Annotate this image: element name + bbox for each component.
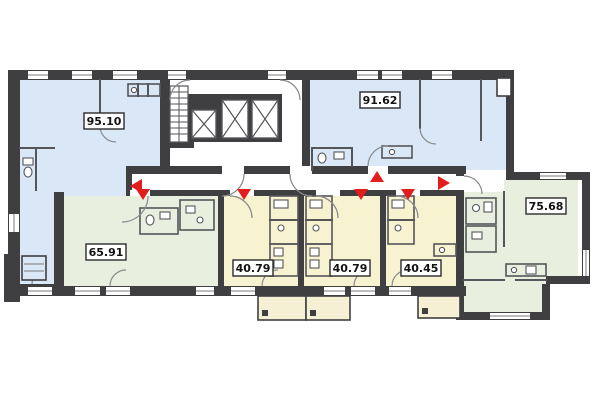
door-opening bbox=[316, 190, 340, 196]
area-label-text: 65.91 bbox=[89, 246, 124, 259]
elevator-shaft bbox=[222, 100, 248, 138]
area-label-91-62: 91.62 bbox=[360, 92, 400, 108]
area-label-text: 40.79 bbox=[333, 262, 368, 275]
window bbox=[106, 287, 130, 295]
window bbox=[72, 71, 92, 79]
window bbox=[324, 287, 345, 295]
area-label-text: 75.68 bbox=[529, 200, 564, 213]
window bbox=[113, 71, 137, 79]
window bbox=[75, 287, 100, 295]
balcony bbox=[497, 78, 511, 96]
area-label-40-79-b: 40.79 bbox=[330, 260, 370, 276]
staircase bbox=[170, 86, 188, 142]
door-opening bbox=[290, 166, 312, 174]
area-label-65-91: 65.91 bbox=[86, 244, 126, 260]
area-label-text: 40.45 bbox=[404, 262, 439, 275]
window bbox=[432, 71, 452, 79]
window bbox=[540, 173, 566, 179]
door-opening bbox=[222, 166, 244, 174]
balcony bbox=[306, 296, 350, 320]
window bbox=[583, 250, 589, 276]
window bbox=[196, 287, 214, 295]
area-label-text: 95.10 bbox=[87, 115, 122, 128]
area-label-text: 91.62 bbox=[363, 94, 398, 107]
area-label-text: 40.79 bbox=[236, 262, 271, 275]
window bbox=[357, 71, 378, 79]
balcony bbox=[258, 296, 306, 320]
door-opening bbox=[456, 176, 464, 190]
floor-plan-svg: 95.10 91.62 65.91 40.79 40.79 40.45 75.6… bbox=[0, 0, 600, 400]
area-label-75-68: 75.68 bbox=[526, 198, 566, 214]
elevator-shaft bbox=[252, 100, 278, 138]
window bbox=[28, 71, 48, 79]
window bbox=[490, 313, 530, 319]
balcony bbox=[418, 296, 460, 318]
area-label-40-45: 40.45 bbox=[401, 260, 441, 276]
window bbox=[382, 71, 402, 79]
area-label-40-79-a: 40.79 bbox=[233, 260, 273, 276]
area-label-95-10: 95.10 bbox=[84, 113, 124, 129]
window bbox=[9, 214, 19, 232]
window bbox=[268, 71, 286, 79]
window bbox=[231, 287, 255, 295]
floor-plan-canvas: 95.10 91.62 65.91 40.79 40.79 40.45 75.6… bbox=[0, 0, 600, 400]
window bbox=[28, 287, 52, 295]
window bbox=[351, 287, 375, 295]
balcony bbox=[22, 256, 46, 280]
entrance-arrow-right-75-68 bbox=[438, 176, 450, 190]
window bbox=[389, 287, 411, 295]
elevator-shaft bbox=[192, 110, 216, 138]
window bbox=[168, 71, 186, 79]
